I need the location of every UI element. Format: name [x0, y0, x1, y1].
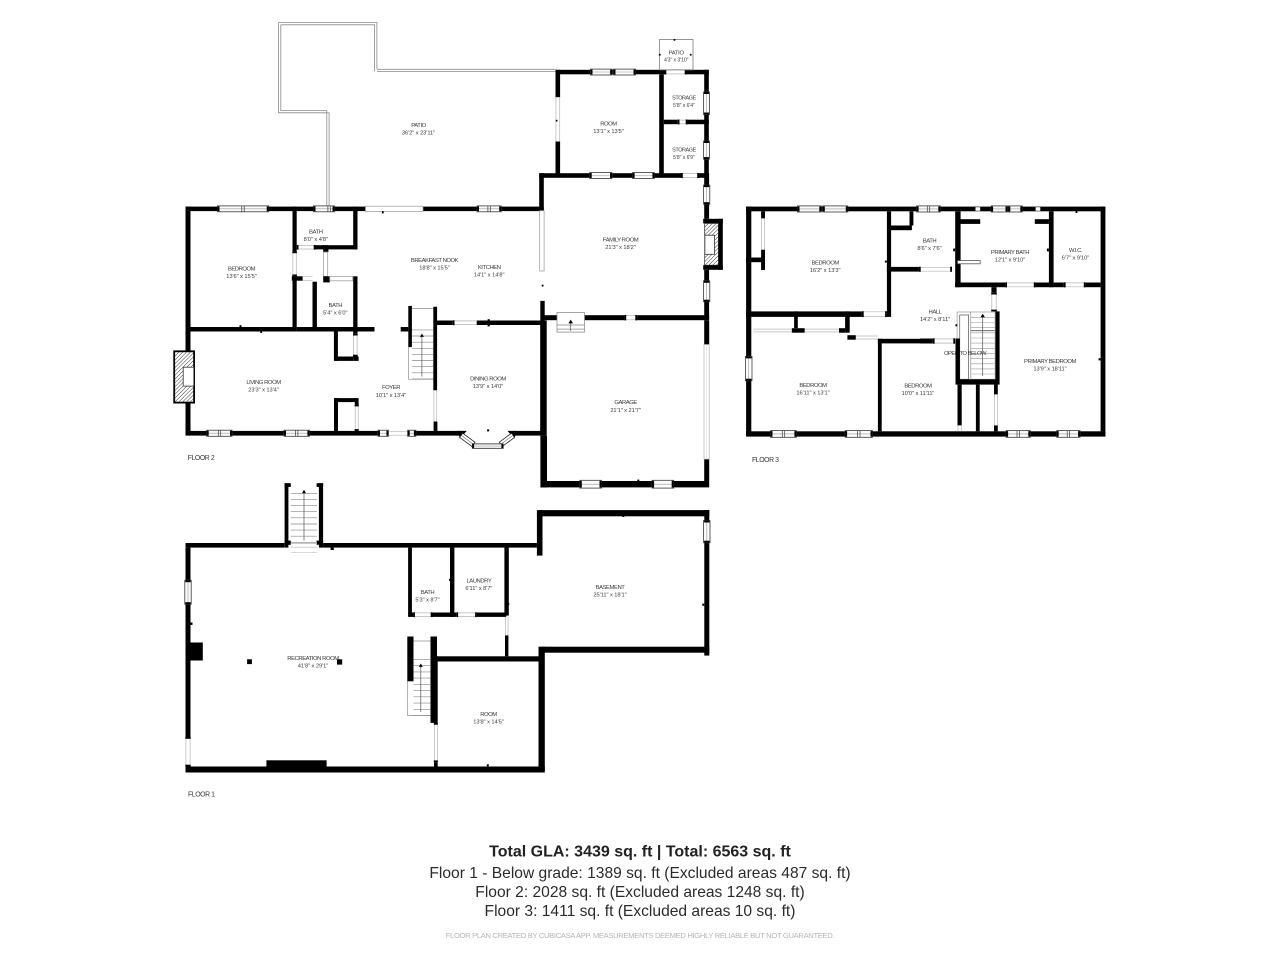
svg-text:HALL: HALL — [929, 310, 943, 316]
svg-text:BEDROOM: BEDROOM — [904, 384, 932, 390]
svg-text:GARAGE: GARAGE — [614, 400, 637, 406]
svg-text:16'11" x 13'1": 16'11" x 13'1" — [796, 391, 829, 397]
svg-text:BATH: BATH — [421, 590, 435, 596]
svg-text:PATIO: PATIO — [669, 50, 685, 56]
svg-text:18'8" x 15'5": 18'8" x 15'5" — [419, 266, 450, 272]
svg-text:13'9" x 14'0": 13'9" x 14'0" — [473, 384, 504, 390]
svg-text:5'3" x 8'7": 5'3" x 8'7" — [415, 598, 439, 604]
svg-text:10'0" x 11'11": 10'0" x 11'11" — [902, 391, 935, 397]
svg-text:BATH: BATH — [923, 239, 937, 245]
svg-text:13'6" x 15'5": 13'6" x 15'5" — [226, 274, 257, 280]
svg-text:FLOOR 1: FLOOR 1 — [188, 792, 215, 799]
svg-text:36'2" x 23'11": 36'2" x 23'11" — [402, 131, 435, 137]
svg-text:Total GLA: 3439 sq. ft | Total: Total GLA: 3439 sq. ft | Total: 6563 sq.… — [489, 844, 791, 861]
svg-text:BEDROOM: BEDROOM — [228, 266, 256, 272]
svg-text:FLOOR PLAN CREATED BY CUBICASA: FLOOR PLAN CREATED BY CUBICASA APP. MEAS… — [446, 931, 835, 940]
svg-text:5'8" x 6'9": 5'8" x 6'9" — [673, 155, 695, 161]
svg-text:DINING ROOM: DINING ROOM — [470, 377, 506, 383]
svg-text:25'11" x 18'1": 25'11" x 18'1" — [593, 593, 626, 599]
svg-text:KITCHEN: KITCHEN — [478, 265, 501, 271]
svg-text:BEDROOM: BEDROOM — [812, 261, 840, 267]
svg-text:W.I.C.: W.I.C. — [1069, 248, 1083, 254]
svg-text:6'7" x 9'10": 6'7" x 9'10" — [1062, 256, 1089, 262]
svg-text:ROOM: ROOM — [480, 712, 497, 718]
svg-text:LAUNDRY: LAUNDRY — [466, 579, 491, 585]
svg-text:BREAKFAST NOOK: BREAKFAST NOOK — [411, 258, 459, 264]
svg-text:13'1" x 13'5": 13'1" x 13'5" — [593, 129, 624, 135]
svg-text:14'1" x 14'8": 14'1" x 14'8" — [474, 273, 505, 279]
svg-text:Floor 1 - Below grade: 1389 sq: Floor 1 - Below grade: 1389 sq. ft (Excl… — [429, 865, 850, 882]
svg-text:FLOOR 3: FLOOR 3 — [752, 457, 779, 464]
svg-text:23'3" x 13'4": 23'3" x 13'4" — [248, 388, 279, 394]
svg-text:STORAGE: STORAGE — [672, 96, 696, 102]
svg-text:10'1" x 13'4": 10'1" x 13'4" — [376, 393, 407, 399]
svg-text:FOYER: FOYER — [382, 385, 400, 391]
svg-text:Floor 2: 2028 sq. ft (Excluded: Floor 2: 2028 sq. ft (Excluded areas 124… — [475, 884, 804, 901]
svg-text:14'2" x 8'11": 14'2" x 8'11" — [920, 317, 950, 323]
svg-text:FAMILY ROOM: FAMILY ROOM — [603, 238, 639, 244]
svg-text:OPEN TO BELOW: OPEN TO BELOW — [944, 351, 987, 357]
svg-text:21'3" x 18'2": 21'3" x 18'2" — [605, 245, 636, 251]
svg-text:6'11" x 8'7": 6'11" x 8'7" — [465, 586, 492, 592]
svg-text:Floor 3: 1411 sq. ft (Excluded: Floor 3: 1411 sq. ft (Excluded areas 10 … — [485, 903, 796, 920]
svg-text:BASEMENT: BASEMENT — [596, 585, 626, 591]
svg-text:4'3" x 3'10": 4'3" x 3'10" — [664, 57, 689, 63]
svg-text:5'4" x 6'0": 5'4" x 6'0" — [323, 311, 347, 317]
svg-text:RECREATION ROOM: RECREATION ROOM — [287, 656, 339, 662]
svg-text:PRIMARY BEDROOM: PRIMARY BEDROOM — [1024, 359, 1076, 365]
svg-text:13'9" x 18'11": 13'9" x 18'11" — [1033, 367, 1066, 373]
svg-text:21'1" x 21'7": 21'1" x 21'7" — [610, 408, 641, 414]
svg-text:8'6" x 7'6": 8'6" x 7'6" — [917, 246, 941, 252]
svg-text:FLOOR 2: FLOOR 2 — [188, 455, 215, 462]
svg-text:8'0" x 4'8": 8'0" x 4'8" — [304, 237, 328, 243]
svg-text:STORAGE: STORAGE — [672, 148, 696, 154]
svg-text:BATH: BATH — [309, 230, 323, 236]
svg-text:BATH: BATH — [329, 303, 343, 309]
svg-text:PATIO: PATIO — [411, 123, 426, 129]
svg-text:5'8" x 6'4": 5'8" x 6'4" — [673, 103, 695, 109]
svg-text:16'2" x 13'3": 16'2" x 13'3" — [810, 268, 841, 274]
svg-text:ROOM: ROOM — [600, 122, 617, 128]
svg-text:BEDROOM: BEDROOM — [799, 383, 827, 389]
svg-text:41'8" x 29'1": 41'8" x 29'1" — [298, 664, 329, 670]
svg-text:12'1" x 9'10": 12'1" x 9'10" — [995, 258, 1026, 264]
svg-text:13'8" x 14'5": 13'8" x 14'5" — [473, 720, 504, 726]
svg-text:PRIMARY BATH: PRIMARY BATH — [991, 250, 1029, 256]
svg-text:LIVING ROOM: LIVING ROOM — [246, 380, 281, 386]
